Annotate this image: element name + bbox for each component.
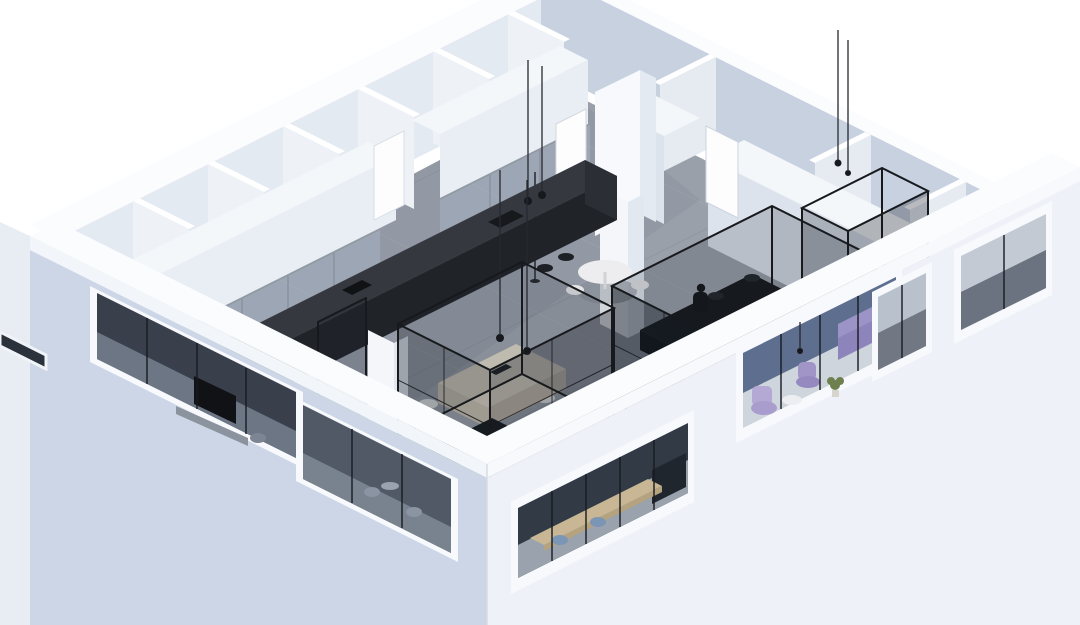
blue-chair: [590, 517, 606, 527]
facade-left-return: [0, 222, 30, 625]
booth-door: [374, 131, 404, 220]
scene-svg: [0, 0, 1080, 625]
bar-stool: [558, 253, 574, 261]
office-door: [706, 126, 738, 218]
office-axonometric-rendering: [0, 0, 1080, 625]
coffee-table: [782, 395, 802, 405]
blue-chair: [552, 535, 568, 545]
